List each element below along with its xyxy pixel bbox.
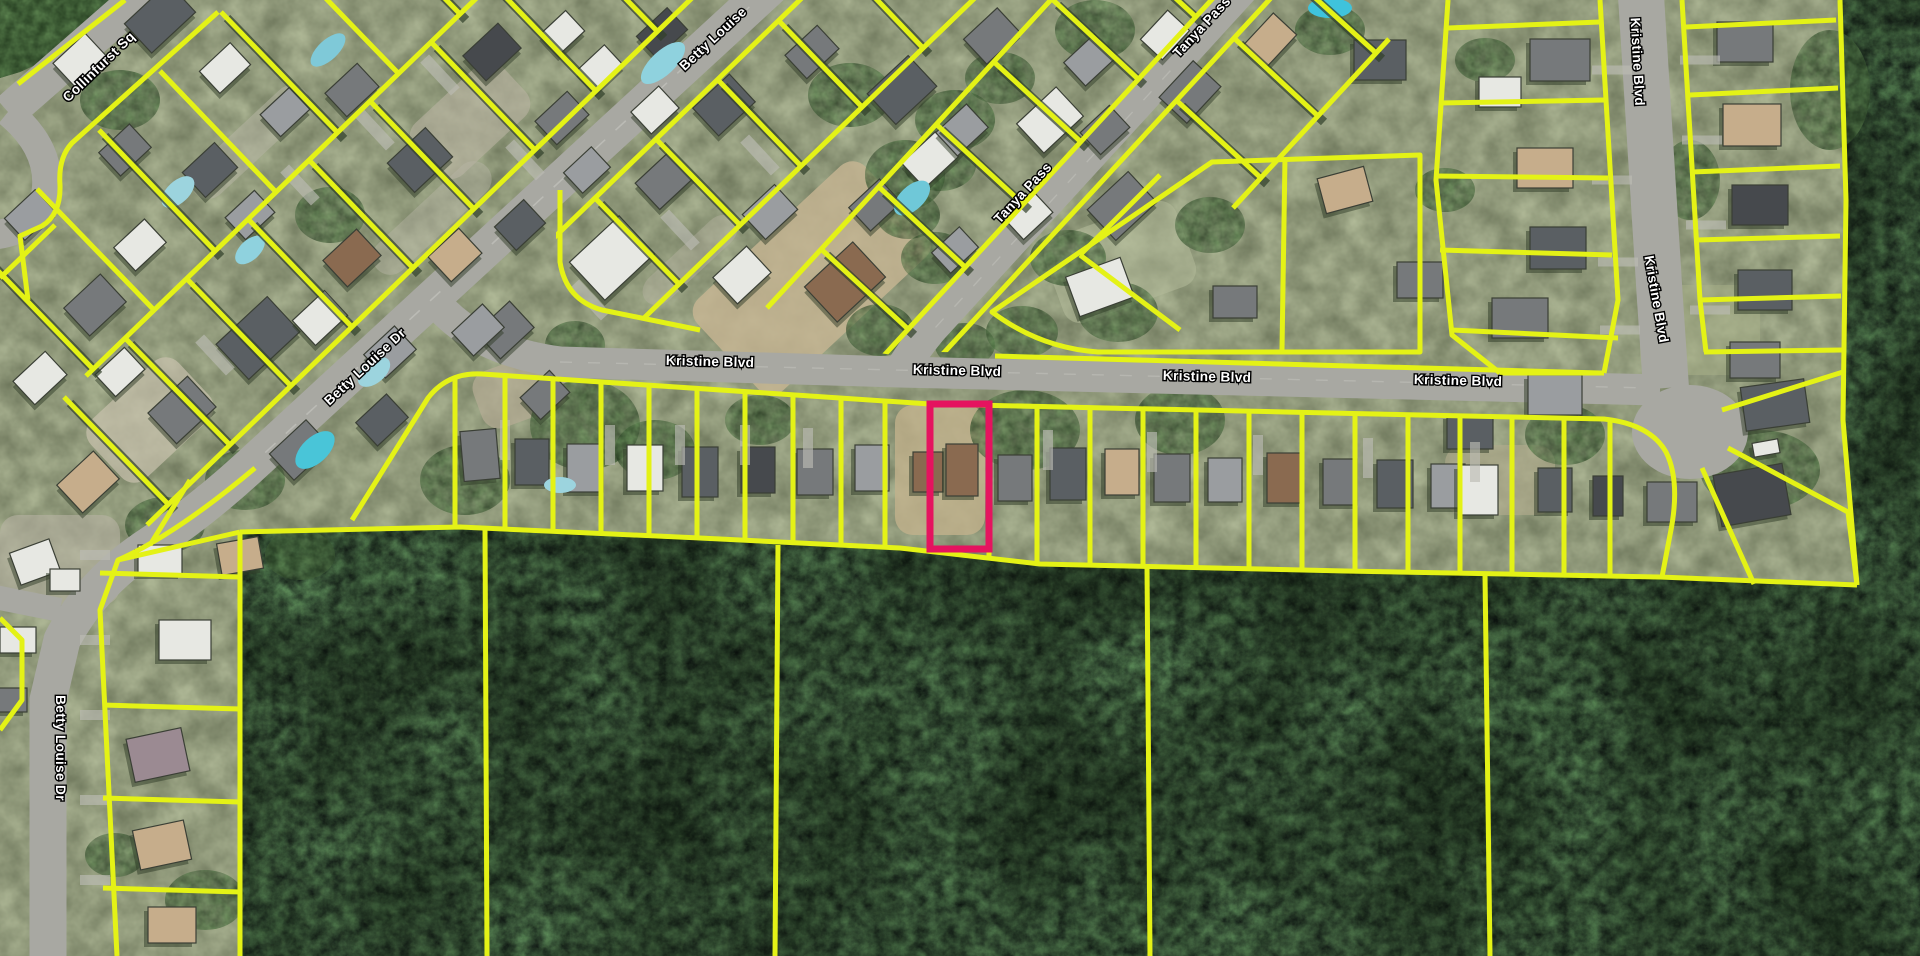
- svg-text:Kristine Blvd: Kristine Blvd: [913, 362, 1002, 379]
- svg-text:Kristine Blvd: Kristine Blvd: [666, 353, 755, 370]
- svg-text:Betty Louise Dr: Betty Louise Dr: [53, 695, 68, 801]
- svg-text:Kristine Blvd: Kristine Blvd: [1163, 368, 1252, 385]
- svg-text:Kristine Blvd: Kristine Blvd: [1414, 372, 1503, 389]
